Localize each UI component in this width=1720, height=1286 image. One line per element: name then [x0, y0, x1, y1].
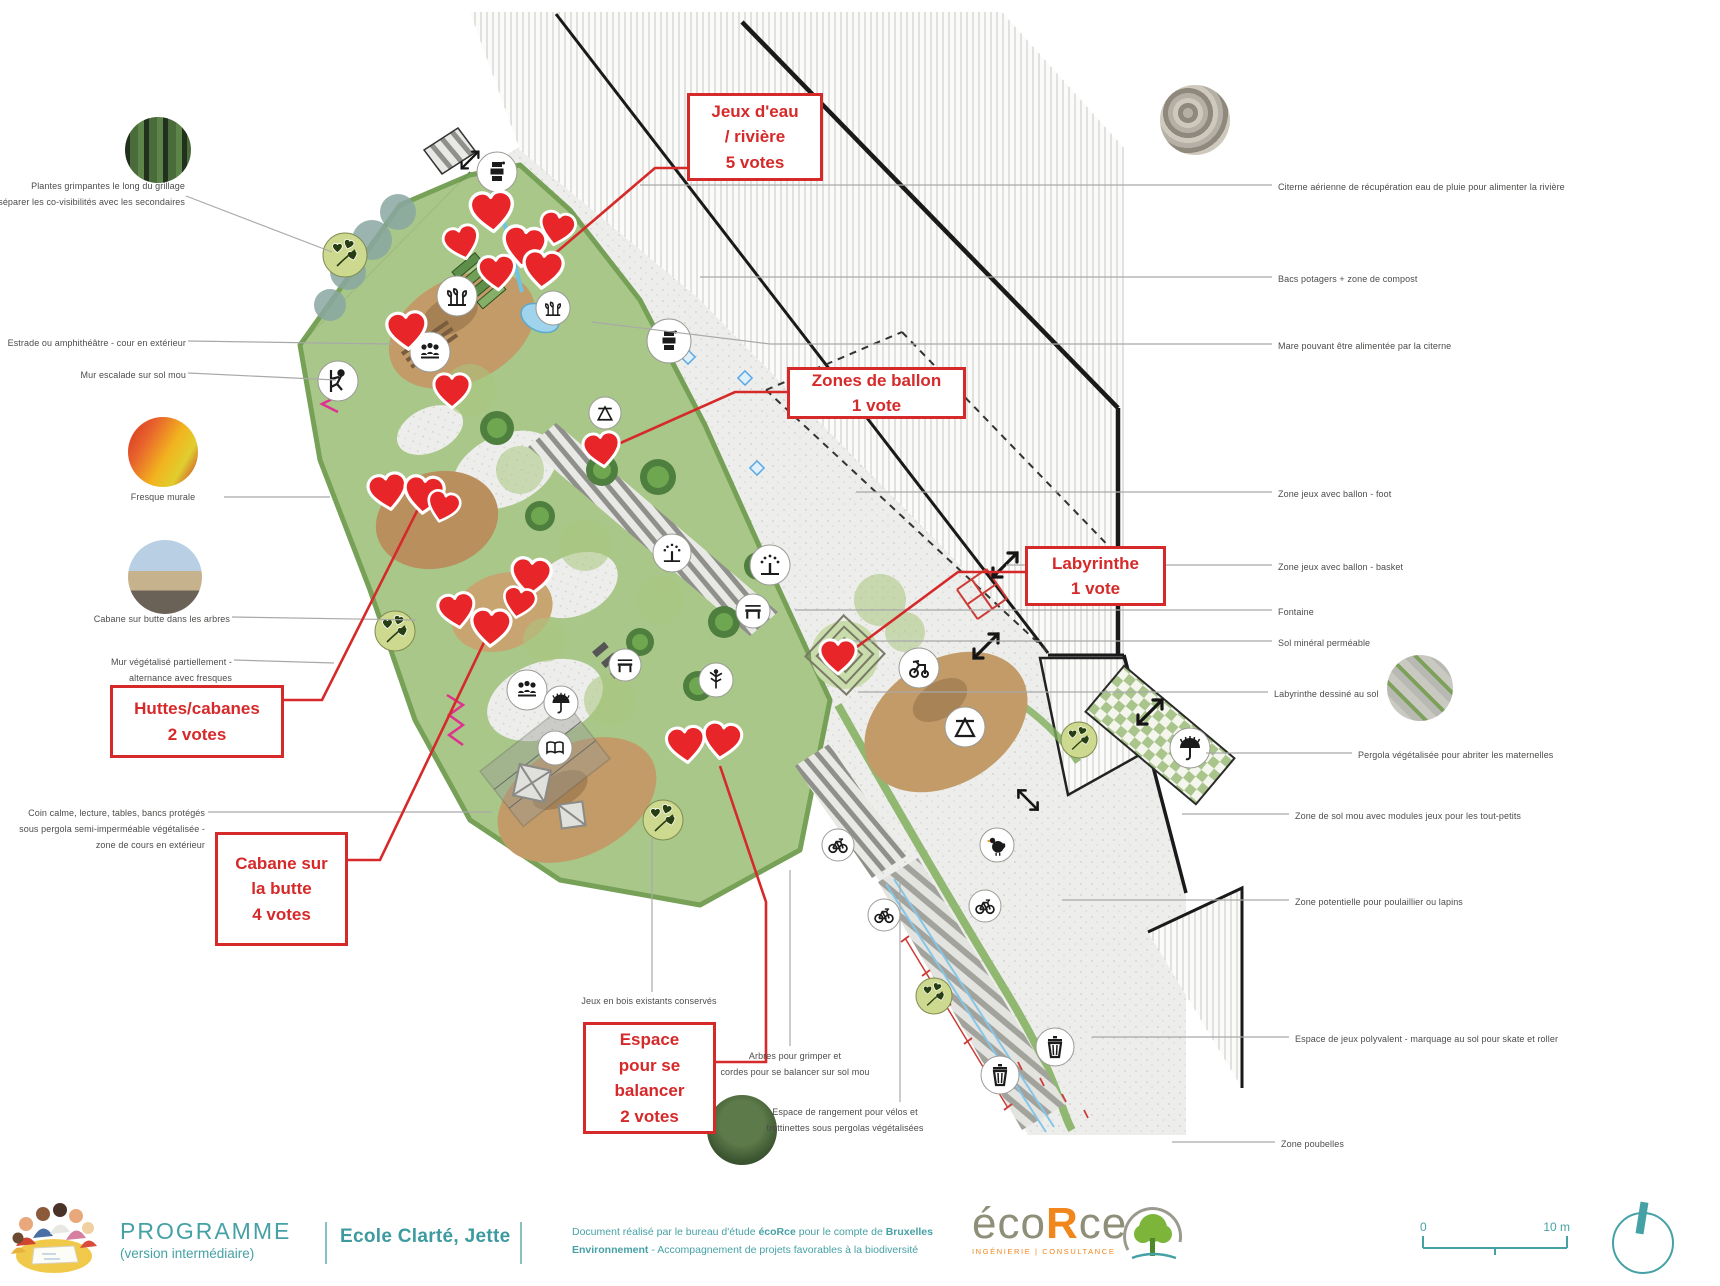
label-permeable-ground: Sol minéral perméable	[1278, 636, 1370, 652]
vegetation-zone-icon	[643, 800, 683, 840]
water-pump-icon	[647, 319, 691, 363]
label-pergola-maternelles: Pergola végétalisée pour abriter les mat…	[1358, 748, 1553, 764]
photo-water-cistern	[1160, 85, 1230, 155]
vote-box-water-games: Jeux d'eau / rivière 5 votes	[687, 93, 823, 181]
site-plan-page: Plantes grimpantes le long du grillage p…	[0, 0, 1720, 1286]
label-cabin-on-mound-trees: Cabane sur butte dans les arbres	[44, 612, 230, 628]
umbrella-pergola-icon	[544, 686, 578, 720]
label-estrade: Estrade ou amphithéâtre - cour en extéri…	[2, 336, 186, 352]
fountain-icon	[653, 534, 691, 572]
tree-climbing-icon	[699, 663, 733, 697]
fountain-icon	[750, 545, 790, 585]
logo-tagline: INGÉNIERIE | CONSULTANCE	[972, 1248, 1127, 1256]
label-climbing-plants: Plantes grimpantes le long du grillage p…	[0, 179, 185, 211]
pond-icon	[536, 291, 570, 325]
climbing-icon	[318, 361, 358, 401]
label-pond: Mare pouvant être alimentée par la citer…	[1278, 339, 1451, 355]
photo-mural-fresco	[128, 417, 198, 487]
footer-divider	[325, 1222, 327, 1264]
bench-icon	[609, 649, 641, 681]
credit-environnement: Environnement	[572, 1244, 648, 1256]
program-subtitle: (version intermédiaire)	[120, 1246, 254, 1261]
logo-r: R	[1046, 1199, 1079, 1248]
vote-box-swinging-space: Espace pour se balancer 2 votes	[583, 1022, 716, 1134]
credit-ecorce: écoRce	[758, 1226, 795, 1238]
vote-box-mound-cabin: Cabane sur la butte 4 votes	[215, 832, 348, 946]
label-existing-wooden-games: Jeux en bois existants conservés	[549, 994, 749, 1010]
credit-segment: pour le compte de	[796, 1226, 886, 1238]
label-quiet-corner: Coin calme, lecture, tables, bancs proté…	[16, 806, 205, 853]
book-icon	[538, 731, 572, 765]
label-mural-fresco: Fresque murale	[103, 490, 223, 506]
label-bike-storage: Espace de rangement pour vélos et trotti…	[745, 1105, 945, 1137]
bike-icon	[868, 899, 900, 931]
vote-box-labyrinth: Labyrinthe 1 vote	[1025, 546, 1166, 606]
play-structure-icon	[589, 397, 621, 429]
ecorce-logo: écoRce INGÉNIERIE | CONSULTANCE	[972, 1202, 1127, 1256]
vote-box-huts-cabins: Huttes/cabanes 2 votes	[110, 685, 284, 758]
label-soft-ground-toddlers: Zone de sol mou avec modules jeux pour l…	[1295, 809, 1521, 825]
scale-bar: 0 10 m	[1420, 1220, 1570, 1259]
people-gathering-icon	[507, 670, 547, 710]
bike-icon	[969, 890, 1001, 922]
vote-box-ball-zones: Zones de ballon 1 vote	[787, 367, 966, 419]
umbrella-pergola-icon	[1170, 728, 1210, 768]
vegetable-rows-icon	[437, 276, 477, 316]
vegetation-zone-icon	[1061, 722, 1097, 758]
photo-treehouse-cabin	[128, 540, 202, 614]
trash-icon	[981, 1056, 1019, 1094]
photo-ground-labyrinth	[1387, 655, 1453, 721]
scale-zero-label: 0	[1420, 1220, 1427, 1234]
label-climbing-trees-ropes: Arbres pour grimper et cordes pour se ba…	[695, 1049, 895, 1081]
bike-icon	[822, 829, 854, 861]
water-pump-icon	[477, 152, 517, 192]
vegetation-zone-icon	[916, 978, 952, 1014]
tree-logo-icon	[1118, 1200, 1188, 1270]
bench-icon	[736, 594, 770, 628]
label-ball-zone-foot: Zone jeux avec ballon - foot	[1278, 487, 1391, 503]
credit-segment: - Accompagnement de projets favorables à…	[648, 1244, 918, 1256]
program-title: PROGRAMME	[120, 1218, 291, 1245]
label-chicken-coop-zone: Zone potentielle pour poulaillier ou lap…	[1295, 895, 1463, 911]
label-ball-zone-basket: Zone jeux avec ballon - basket	[1278, 560, 1403, 576]
credit-bruxelles: Bruxelles	[886, 1226, 933, 1238]
label-ground-labyrinth: Labyrinthe dessiné au sol	[1274, 687, 1379, 703]
label-vegetable-beds-compost: Bacs potagers + zone de compost	[1278, 272, 1417, 288]
vegetation-zone-icon	[375, 611, 415, 651]
play-structure-icon	[945, 707, 985, 747]
label-skate-roller-zone: Espace de jeux polyvalent - marquage au …	[1295, 1032, 1558, 1048]
chicken-icon	[980, 828, 1014, 862]
label-fountain: Fontaine	[1278, 605, 1314, 621]
label-climbing-wall: Mur escalade sur sol mou	[2, 368, 186, 384]
vegetation-zone-icon	[323, 233, 367, 277]
credit-text: Document réalisé par le bureau d'étude é…	[572, 1224, 933, 1260]
scale-bar-line	[1420, 1234, 1570, 1256]
footer-divider	[520, 1222, 522, 1264]
photo-climbing-plants	[125, 117, 191, 183]
scale-ten-label: 10 m	[1543, 1220, 1570, 1234]
label-green-wall: Mur végétalisé partiellement - alternanc…	[46, 655, 232, 687]
project-name: Ecole Clarté, Jette	[340, 1226, 510, 1248]
label-trash-zone: Zone poubelles	[1281, 1137, 1344, 1153]
trash-icon	[1036, 1028, 1074, 1066]
logo-eco: éco	[972, 1199, 1046, 1248]
credit-segment: Document réalisé par le bureau d'étude	[572, 1226, 758, 1238]
participation-illustration	[8, 1190, 100, 1285]
tricycle-icon	[899, 648, 939, 688]
label-rain-cistern: Citerne aérienne de récupération eau de …	[1278, 180, 1565, 196]
